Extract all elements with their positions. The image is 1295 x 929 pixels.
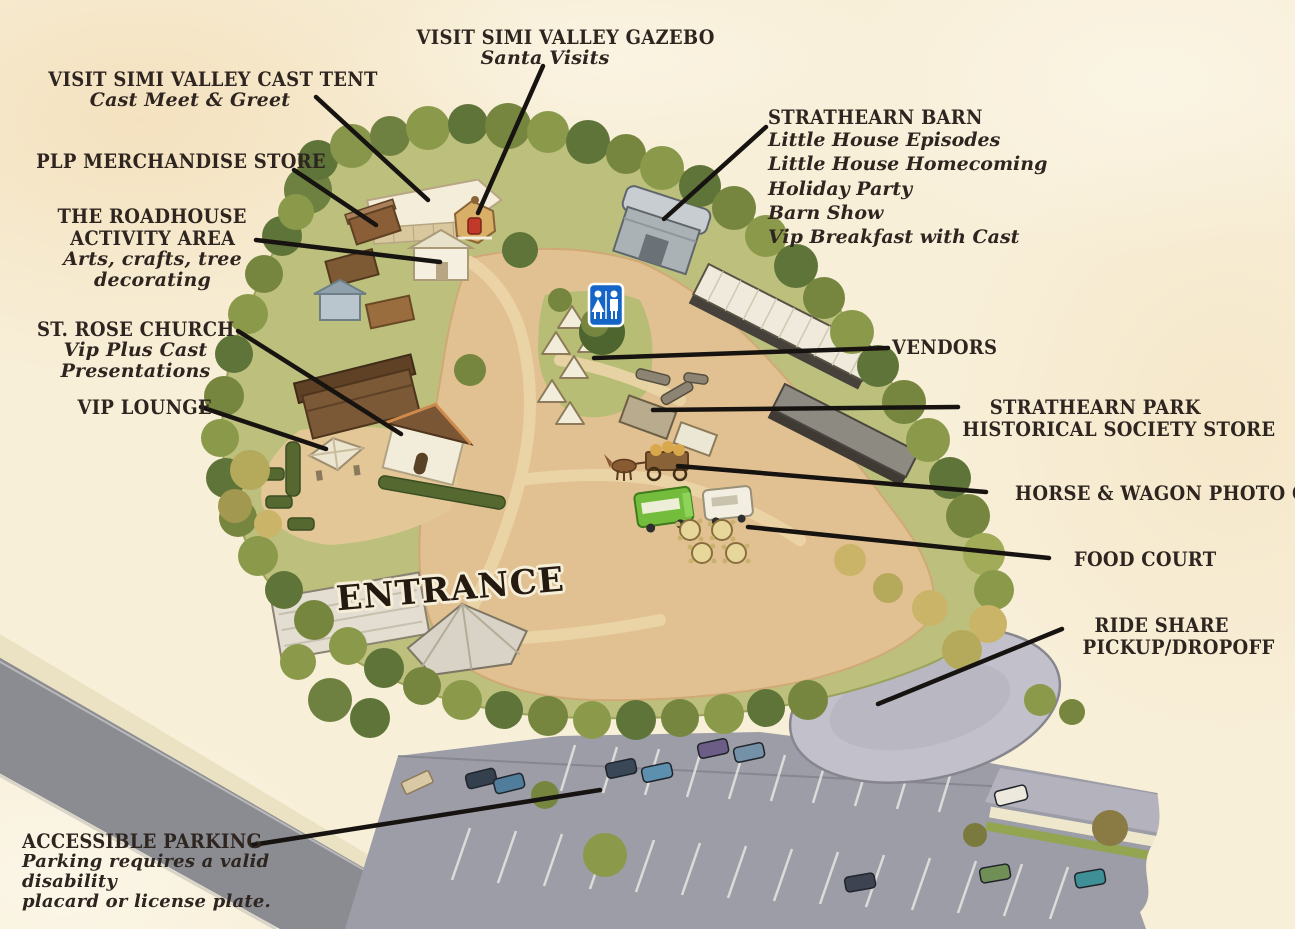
label-accessible-parking-title: ACCESSIBLE PARKING: [22, 830, 262, 852]
label-society-store-line2: HISTORICAL SOCIETY STORE: [962, 418, 1275, 440]
label-society-store: STRATHEARN PARK HISTORICAL SOCIETY STORE: [945, 396, 1245, 440]
label-roadhouse-line2: ACTIVITY AREA: [70, 227, 235, 249]
label-vendors-title: VENDORS: [892, 336, 997, 358]
santa-figure: [468, 218, 481, 234]
torn-paper-edge: [1140, 760, 1295, 929]
label-merch-store: PLP MERCHANDISE STORE: [20, 150, 300, 172]
label-horse-wagon-title: HORSE & WAGON PHOTO OP: [1015, 482, 1295, 504]
label-ride-share-line2: PICKUP/DROPOFF: [1083, 636, 1275, 658]
label-society-store-line1: STRATHEARN PARK: [990, 396, 1201, 418]
label-strathearn-barn-title: STRATHEARN BARN: [768, 106, 983, 128]
label-vip-lounge: VIP LOUNGE: [70, 396, 200, 418]
label-ride-share: RIDE SHARE PICKUP/DROPOFF: [1072, 614, 1252, 658]
label-roadhouse-subtitle: Arts, crafts, tree decorating: [25, 249, 280, 291]
label-horse-wagon: HORSE & WAGON PHOTO OP: [998, 482, 1283, 504]
label-roadhouse: THE ROADHOUSE ACTIVITY AREA Arts, crafts…: [25, 205, 280, 291]
label-merch-store-title: PLP MERCHANDISE STORE: [36, 150, 326, 172]
label-accessible-parking-sub1: Parking requires a valid disability: [22, 852, 352, 892]
label-cast-tent-title: VISIT SIMI VALLEY CAST TENT: [48, 68, 377, 90]
label-church: ST. ROSE CHURCH Vip Plus Cast Presentati…: [8, 318, 263, 382]
barn-event: Little House Episodes: [768, 128, 1038, 152]
label-gazebo-subtitle: Santa Visits: [400, 48, 690, 69]
barn-event: Little House Homecoming: [768, 152, 1038, 176]
barn-event: Vip Breakfast with Cast: [768, 225, 1038, 249]
barn-event: Barn Show: [768, 201, 1038, 225]
restroom-sign-icon: [589, 284, 623, 326]
label-church-subtitle: Vip Plus Cast Presentations: [8, 340, 263, 382]
label-church-title: ST. ROSE CHURCH: [37, 318, 235, 340]
label-accessible-parking: ACCESSIBLE PARKING Parking requires a va…: [22, 830, 352, 911]
label-ride-share-line1: RIDE SHARE: [1095, 614, 1229, 636]
label-roadhouse-line1: THE ROADHOUSE: [58, 205, 247, 227]
map-illustration: [0, 0, 1295, 929]
label-vip-lounge-title: VIP LOUNGE: [77, 396, 211, 418]
label-cast-tent-subtitle: Cast Meet & Greet: [30, 90, 350, 111]
label-vendors: VENDORS: [892, 336, 1012, 358]
label-food-court: FOOD COURT: [1066, 548, 1206, 570]
barn-event: Holiday Party: [768, 177, 1038, 201]
label-food-court-title: FOOD COURT: [1074, 548, 1216, 570]
park-map: VISIT SIMI VALLEY GAZEBO Santa Visits VI…: [0, 0, 1295, 929]
label-accessible-parking-sub2: placard or license plate.: [22, 892, 352, 912]
label-cast-tent: VISIT SIMI VALLEY CAST TENT Cast Meet & …: [30, 68, 350, 111]
label-strathearn-barn: STRATHEARN BARN Little House Episodes Li…: [768, 106, 1038, 250]
label-gazebo-title: VISIT SIMI VALLEY GAZEBO: [417, 26, 715, 48]
label-gazebo: VISIT SIMI VALLEY GAZEBO Santa Visits: [400, 26, 690, 69]
